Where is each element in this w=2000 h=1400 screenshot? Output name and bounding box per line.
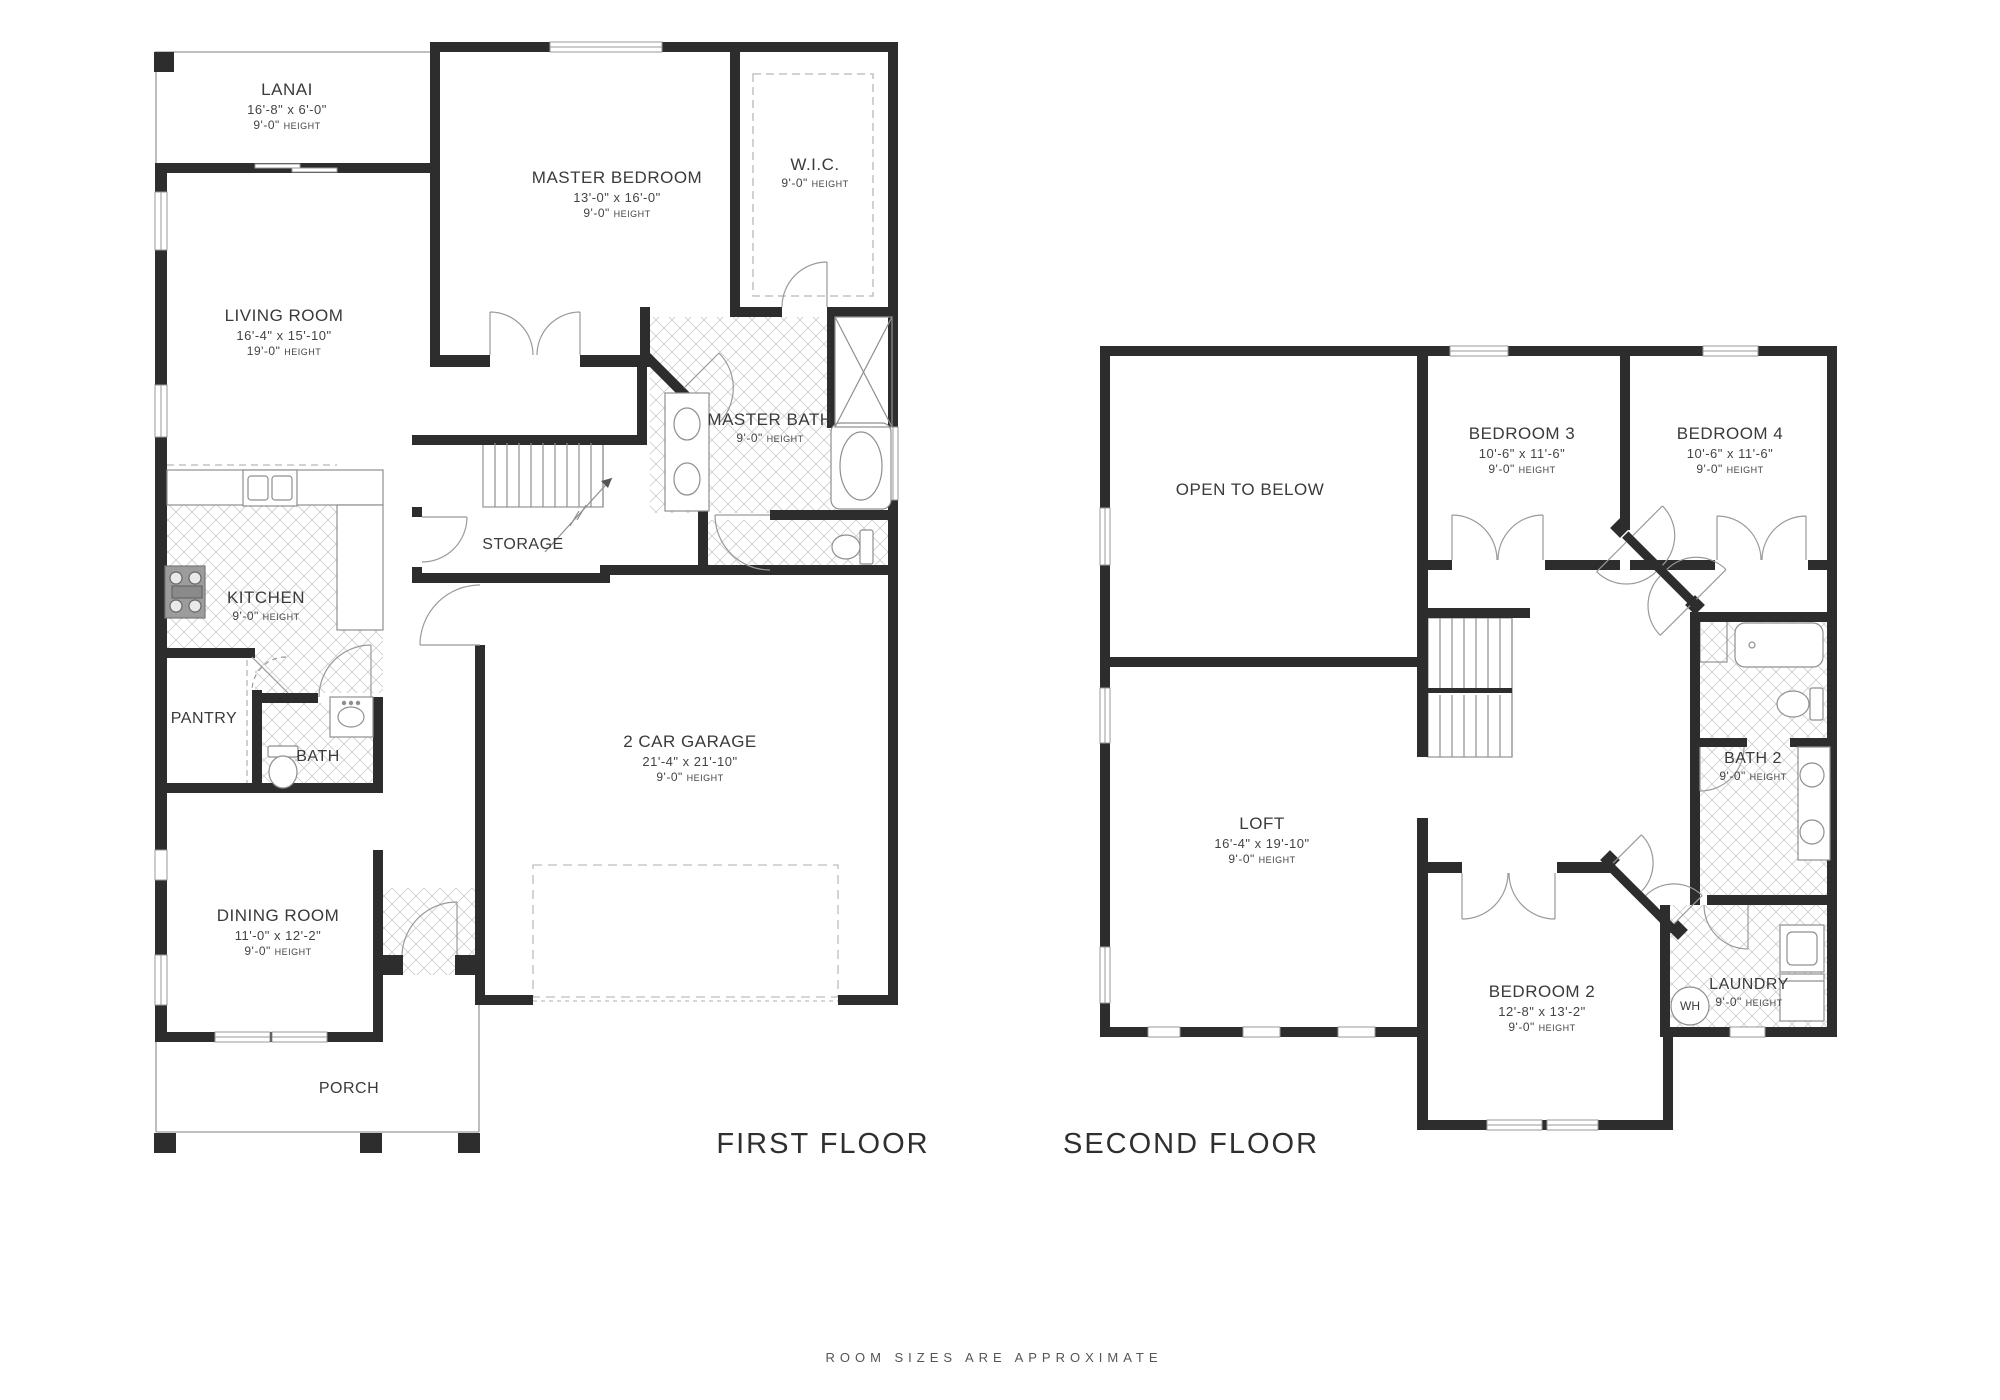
bath2-toilet: [1810, 688, 1823, 720]
stairs2-treads-lower: [1440, 695, 1500, 757]
bath2-tub: [1735, 623, 1823, 667]
room-dims: 16'-8" x 6'-0": [247, 103, 327, 118]
room-height: 9'-0" HEIGHT: [707, 432, 832, 446]
room-height: 9'-0" HEIGHT: [1677, 463, 1784, 477]
room-label-porch: PORCH: [319, 1080, 379, 1098]
room-dims: 10'-6" x 11'-6": [1677, 447, 1784, 462]
room-height: 9'-0" HEIGHT: [1719, 770, 1786, 784]
room-height: 9'-0" HEIGHT: [217, 945, 340, 959]
floor-plan-sheet: LANAI 16'-8" x 6'-0" 9'-0" HEIGHT MASTER…: [0, 0, 2000, 1400]
room-name: BEDROOM 3: [1469, 424, 1576, 444]
bath-toilet: [268, 746, 298, 757]
room-label-loft: LOFT 16'-4" x 19'-10" 9'-0" HEIGHT: [1214, 814, 1309, 867]
room-label-laundry: LAUNDRY 9'-0" HEIGHT: [1709, 976, 1789, 1010]
room-dims: 13'-0" x 16'-0": [532, 191, 702, 206]
room-name: BATH 2: [1719, 750, 1786, 768]
room-label-bedroom4: BEDROOM 4 10'-6" x 11'-6" 9'-0" HEIGHT: [1677, 424, 1784, 477]
room-height: 9'-0" HEIGHT: [1489, 1021, 1596, 1035]
room-height: 9'-0" HEIGHT: [227, 610, 305, 624]
room-label-bath: BATH: [296, 748, 339, 766]
room-label-bedroom2: BEDROOM 2 12'-8" x 13'-2" 9'-0" HEIGHT: [1489, 982, 1596, 1035]
second-floor-title: SECOND FLOOR: [1063, 1128, 1319, 1161]
stairs2-treads-upper: [1440, 618, 1500, 688]
room-name: LOFT: [1214, 814, 1309, 834]
room-height: 19'-0" HEIGHT: [225, 345, 344, 359]
room-name: LANAI: [247, 80, 327, 100]
room-label-master-bath: MASTER BATH 9'-0" HEIGHT: [707, 410, 832, 445]
kitchen-counter-right: [337, 505, 383, 630]
room-height: 9'-0" HEIGHT: [1469, 463, 1576, 477]
room-name: 2 CAR GARAGE: [623, 732, 757, 752]
room-dims: 10'-6" x 11'-6": [1469, 447, 1576, 462]
room-height: 9'-0" HEIGHT: [781, 177, 848, 191]
room-label-wic: W.I.C. 9'-0" HEIGHT: [781, 155, 848, 190]
room-label-dining-room: DINING ROOM 11'-0" x 12'-2" 9'-0" HEIGHT: [217, 906, 340, 959]
room-height: 9'-0" HEIGHT: [1709, 996, 1789, 1010]
room-dims: 16'-4" x 19'-10": [1214, 837, 1309, 852]
room-height: 9'-0" HEIGHT: [623, 771, 757, 785]
room-label-kitchen: KITCHEN 9'-0" HEIGHT: [227, 588, 305, 623]
room-height: 9'-0" HEIGHT: [247, 119, 327, 133]
room-label-open-to-below: OPEN TO BELOW: [1176, 480, 1325, 500]
room-label-living-room: LIVING ROOM 16'-4" x 15'-10" 19'-0" HEIG…: [225, 306, 344, 359]
room-height: 9'-0" HEIGHT: [532, 207, 702, 221]
water-heater-label: WH: [1680, 999, 1700, 1013]
room-name: BATH: [296, 748, 339, 766]
room-label-garage: 2 CAR GARAGE 21'-4" x 21'-10" 9'-0" HEIG…: [623, 732, 757, 785]
room-label-storage: STORAGE: [482, 536, 563, 554]
room-dims: 16'-4" x 15'-10": [225, 329, 344, 344]
stairs-treads: [495, 443, 591, 507]
floor-plan-drawing: [0, 0, 2000, 1400]
room-dims: 11'-0" x 12'-2": [217, 929, 340, 944]
room-name: STORAGE: [482, 536, 563, 554]
footnote: ROOM SIZES ARE APPROXIMATE: [825, 1350, 1162, 1365]
room-name: MASTER BEDROOM: [532, 168, 702, 188]
first-floor-title: FIRST FLOOR: [716, 1128, 929, 1161]
room-name: LAUNDRY: [1709, 976, 1789, 994]
room-name: W.I.C.: [781, 155, 848, 175]
room-label-bath2: BATH 2 9'-0" HEIGHT: [1719, 750, 1786, 784]
room-name: LIVING ROOM: [225, 306, 344, 326]
thin-outlines-second: [1428, 617, 1727, 757]
room-dims: 12'-8" x 13'-2": [1489, 1005, 1596, 1020]
room-name: DINING ROOM: [217, 906, 340, 926]
room-label-lanai: LANAI 16'-8" x 6'-0" 9'-0" HEIGHT: [247, 80, 327, 133]
room-name: MASTER BATH: [707, 410, 832, 430]
room-name: BEDROOM 4: [1677, 424, 1784, 444]
room-label-bedroom3: BEDROOM 3 10'-6" x 11'-6" 9'-0" HEIGHT: [1469, 424, 1576, 477]
room-height: 9'-0" HEIGHT: [1214, 853, 1309, 867]
master-toilet: [860, 530, 873, 564]
room-name: KITCHEN: [227, 588, 305, 608]
room-dims: 21'-4" x 21'-10": [623, 755, 757, 770]
room-label-master-bedroom: MASTER BEDROOM 13'-0" x 16'-0" 9'-0" HEI…: [532, 168, 702, 221]
room-name: PANTRY: [171, 710, 237, 728]
room-name: OPEN TO BELOW: [1176, 480, 1325, 500]
room-label-pantry: PANTRY: [171, 710, 237, 728]
room-name: BEDROOM 2: [1489, 982, 1596, 1002]
room-name: PORCH: [319, 1080, 379, 1098]
